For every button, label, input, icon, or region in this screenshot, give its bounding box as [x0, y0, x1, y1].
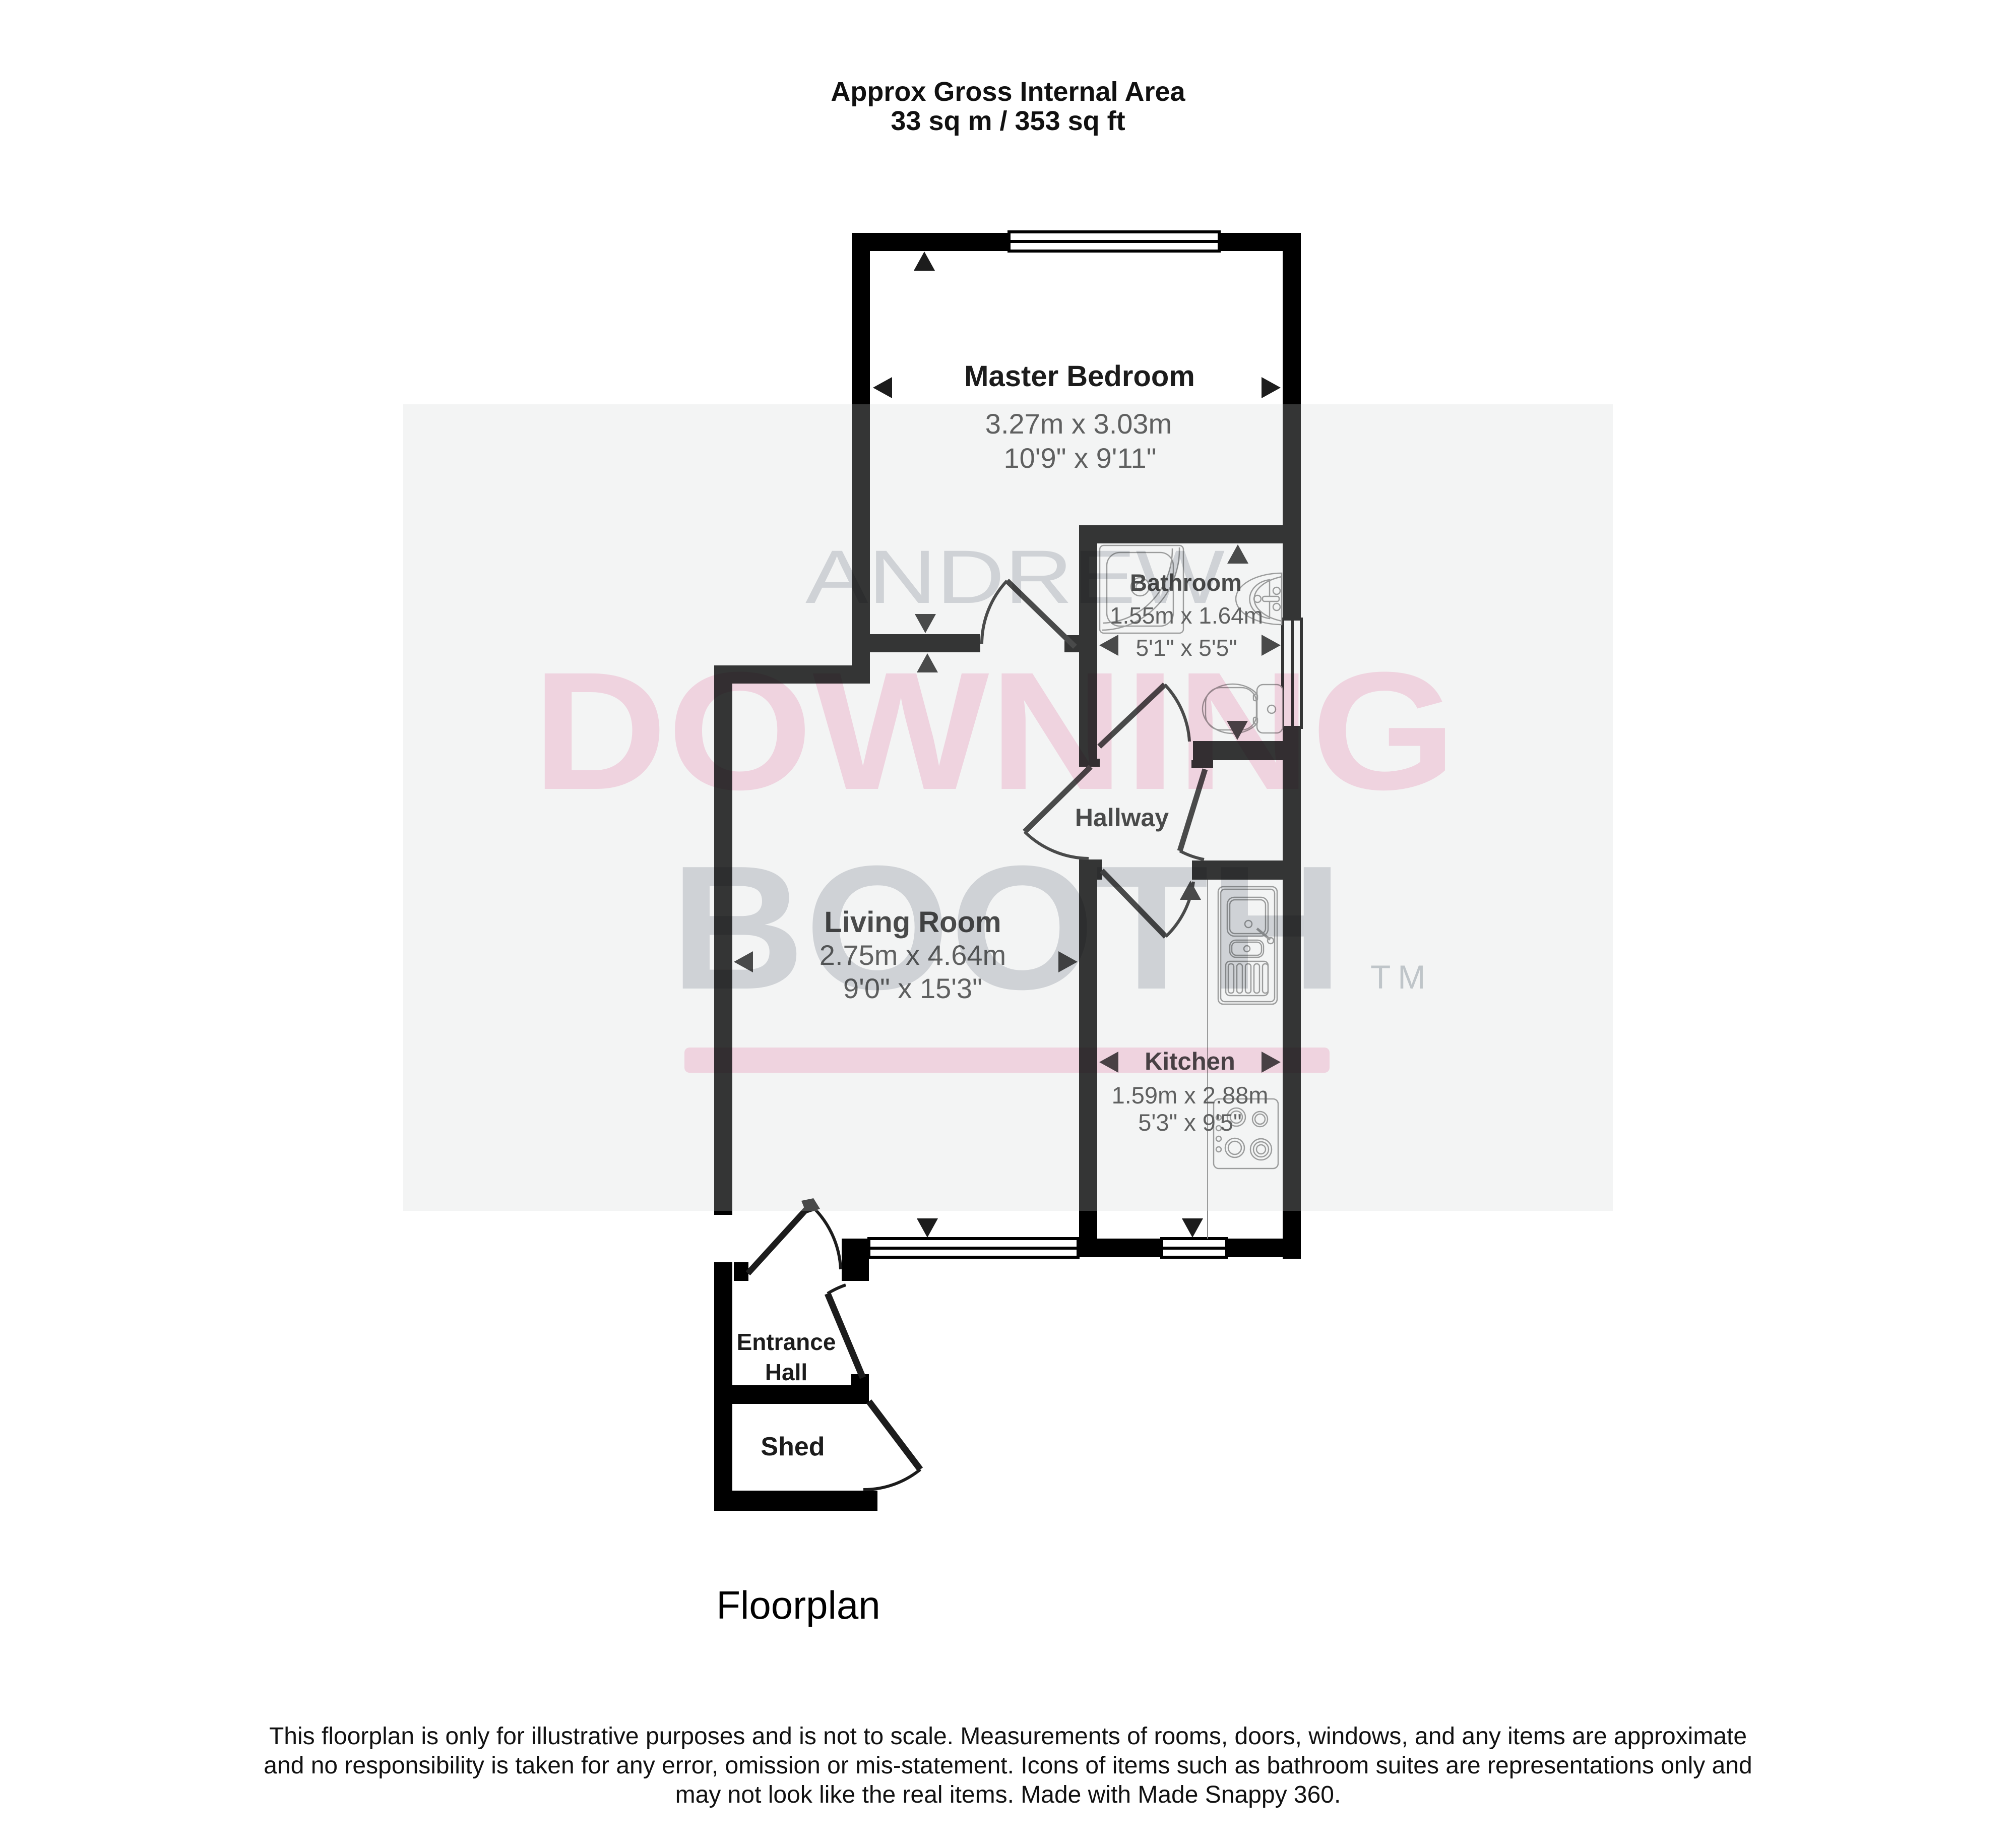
svg-text:Master Bedroom: Master Bedroom: [964, 360, 1195, 393]
svg-text:Floorplan: Floorplan: [716, 1583, 880, 1627]
svg-text:BOOTH: BOOTH: [670, 829, 1343, 1026]
svg-text:DOWNING: DOWNING: [532, 637, 1457, 825]
svg-text:33 sq m / 353 sq ft: 33 sq m / 353 sq ft: [891, 106, 1125, 136]
svg-text:may not look like the real ite: may not look like the real items. Made w…: [675, 1781, 1341, 1808]
svg-text:Hall: Hall: [765, 1359, 807, 1385]
svg-text:ANDREW: ANDREW: [805, 534, 1225, 619]
svg-text:TM: TM: [1370, 958, 1432, 996]
svg-text:and no responsibility is taken: and no responsibility is taken for any e…: [264, 1752, 1752, 1779]
svg-text:Approx Gross Internal Area: Approx Gross Internal Area: [831, 77, 1185, 107]
svg-text:Shed: Shed: [761, 1432, 825, 1461]
svg-text:This floorplan is only for ill: This floorplan is only for illustrative …: [269, 1723, 1747, 1750]
svg-text:Entrance: Entrance: [737, 1329, 836, 1355]
